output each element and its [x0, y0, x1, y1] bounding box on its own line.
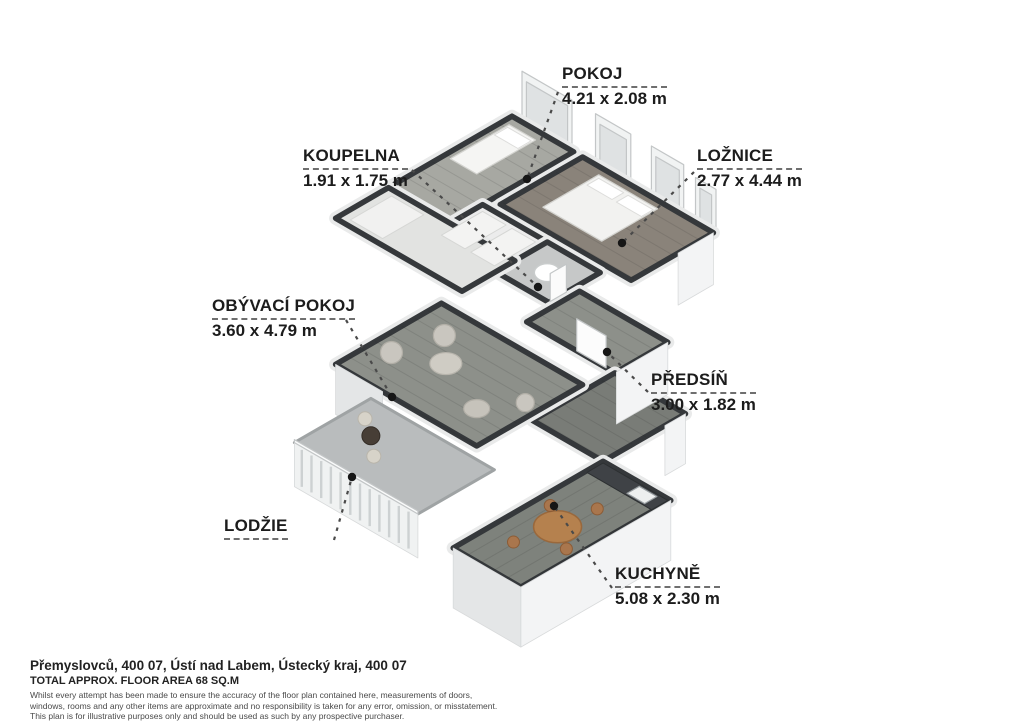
disclaimer-line: windows, rooms and any other items are a… [30, 701, 497, 712]
label-dashed-divider [697, 168, 802, 170]
room-dimensions: 5.08 x 2.30 m [615, 589, 720, 609]
isometric-floorplan-rendering [0, 0, 1024, 723]
label-dashed-divider [303, 168, 408, 170]
room-dimensions: 1.91 x 1.75 m [303, 171, 408, 191]
label-dashed-divider [562, 86, 667, 88]
room-name: POKOJ [562, 64, 667, 84]
room-label-lodzie: LODŽIE [224, 516, 288, 541]
room-label-pokoj: POKOJ 4.21 x 2.08 m [562, 64, 667, 109]
room-name: LOŽNICE [697, 146, 802, 166]
property-address: Přemyslovců, 400 07, Ústí nad Labem, Úst… [30, 658, 497, 673]
room-name: OBÝVACÍ POKOJ [212, 296, 355, 316]
room-name: KUCHYNĚ [615, 564, 720, 584]
room-dimensions: 2.77 x 4.44 m [697, 171, 802, 191]
room-dimensions: 3.60 x 4.79 m [212, 321, 355, 341]
room-name: PŘEDSÍŇ [651, 370, 756, 390]
floorplan-page: POKOJ 4.21 x 2.08 m KOUPELNA 1.91 x 1.75… [0, 0, 1024, 723]
total-floor-area: TOTAL APPROX. FLOOR AREA 68 SQ.M [30, 675, 497, 687]
room-name: LODŽIE [224, 516, 288, 536]
room-label-koupelna: KOUPELNA 1.91 x 1.75 m [303, 146, 408, 191]
room-label-predsin: PŘEDSÍŇ 3.00 x 1.82 m [651, 370, 756, 415]
room-name: KOUPELNA [303, 146, 408, 166]
room-dimensions: 4.21 x 2.08 m [562, 89, 667, 109]
label-dashed-divider [615, 586, 720, 588]
label-dashed-divider [651, 392, 756, 394]
room-label-kuchyne: KUCHYNĚ 5.08 x 2.30 m [615, 564, 720, 609]
room-dimensions: 3.00 x 1.82 m [651, 395, 756, 415]
room-label-obyvaci-pokoj: OBÝVACÍ POKOJ 3.60 x 4.79 m [212, 296, 355, 341]
room-label-loznice: LOŽNICE 2.77 x 4.44 m [697, 146, 802, 191]
disclaimer-line: This plan is for illustrative purposes o… [30, 711, 497, 722]
label-dashed-divider [212, 318, 355, 320]
disclaimer-line: Whilst every attempt has been made to en… [30, 690, 497, 701]
footer: Přemyslovců, 400 07, Ústí nad Labem, Úst… [30, 658, 497, 722]
label-dashed-divider [224, 538, 288, 540]
